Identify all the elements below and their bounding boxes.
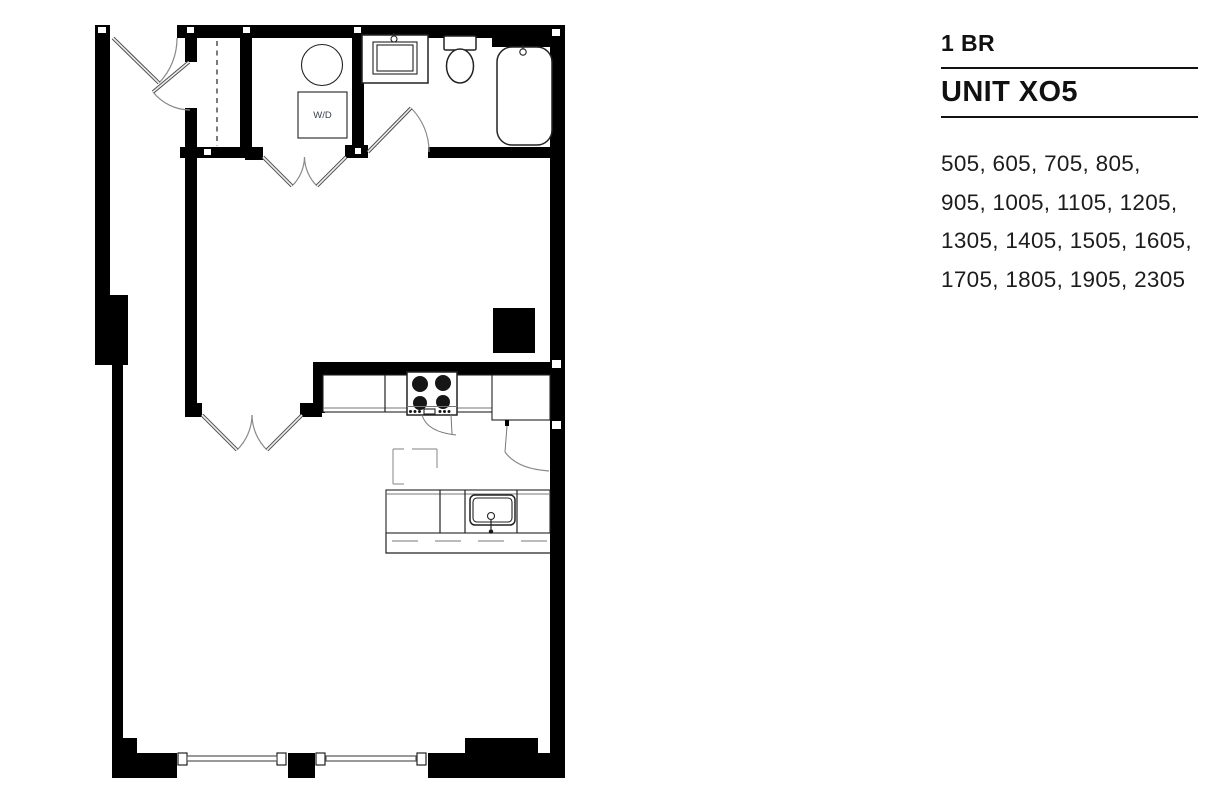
unit-numbers-list: 505, 605, 705, 805, 905, 1005, 1105, 120… [941,145,1198,299]
stove-burner [412,376,428,392]
wall-notch [354,27,361,33]
toilet-tank [444,36,476,50]
door-swing-arc [252,415,267,450]
door-leaf [505,426,507,452]
door-leaf-inner [113,38,159,83]
unit-numbers-line: 505, 605, 705, 805, [941,145,1198,184]
bar-overhang-edge [386,533,550,553]
window-glass [326,756,416,761]
door-leaf-inner [317,157,346,186]
vanity-sink [362,33,428,83]
table-corner-mark [393,449,404,484]
window-jamb [316,753,325,765]
laundry-closet: W/D [298,45,347,139]
faucet-icon [391,36,397,42]
bottom-wall-left [112,753,177,778]
bottom-wall-pier [288,753,315,778]
wall-notch [98,27,106,33]
door-swing-arc [305,157,318,186]
door-hinge-mark [505,420,509,426]
door-swing-arc [237,415,252,450]
entry-closet-door [153,62,190,110]
table-corner-mark [412,449,437,468]
bathroom-bottom-wall [428,147,550,158]
unit-info-panel: 1 BR UNIT XO5 505, 605, 705, 805, 905, 1… [941,30,1198,299]
laundry-double-doors [263,157,346,186]
divider-line [941,67,1198,69]
laundry-door-left-cap [245,147,263,160]
bathroom-door [368,108,429,152]
wall-notch [243,27,250,33]
window-jamb [417,753,426,765]
wall-notch [355,148,361,154]
stove-control-panel [424,409,435,414]
right-wall [550,25,565,778]
tub-outline [497,47,552,145]
bathroom [362,33,552,152]
entry-closet-wall-post [185,38,197,62]
water-heater [302,45,343,86]
french-doors [202,415,302,450]
oven-door-line [451,415,452,434]
stove-burner [435,375,451,391]
washer-dryer-label: W/D [313,110,332,121]
wall-notch [552,29,560,36]
wall-notch [187,27,194,33]
entry-door [113,38,177,83]
left-wall-pilaster [95,295,128,365]
door-leaf-inner [202,415,237,450]
door-swing-arc [505,452,549,471]
stove-knob [418,410,421,413]
sink-faucet [488,513,495,520]
french-door-left-post [185,403,202,417]
window-2 [315,753,428,778]
interior-walls [180,38,550,417]
unit-numbers-line: 905, 1005, 1105, 1205, [941,184,1198,223]
pantry-door [505,420,549,471]
stove-knob [414,410,417,413]
unit-name: UNIT XO5 [941,77,1198,108]
door-leaf-inner [263,157,292,186]
stove [407,372,457,435]
kitchen [323,372,550,553]
counter-right-section [492,375,550,420]
door-leaf-inner [267,415,302,450]
stove-knob [439,410,442,413]
unit-numbers-line: 1305, 1405, 1505, 1605, [941,222,1198,261]
island-outline [386,490,550,533]
dining-table-outline [393,449,437,484]
stove-burner [413,396,427,410]
island-counter [386,490,550,553]
divider-line [941,116,1198,118]
tub-faucet-icon [520,49,526,55]
wall-notch [552,421,561,429]
structural-column [493,308,535,353]
window-1 [177,753,288,778]
door-leaf-inner [368,108,411,152]
wall-notch [204,149,211,155]
sink-faucet-base [489,529,493,533]
toilet [444,36,476,83]
closet-divider-wall [240,38,252,158]
bathtub [497,45,552,145]
window-jamb [277,753,286,765]
toilet-bowl [447,49,474,83]
door-swing-arc [411,108,429,152]
door-swing-arc [292,157,305,186]
unit-numbers-line: 1705, 1805, 1905, 2305 [941,261,1198,300]
wall-notch [552,360,561,368]
floorplan-page: W/D [0,0,1228,794]
bedroom-count-label: 1 BR [941,30,1198,56]
french-door-right-post [300,403,322,417]
stove-knob [443,410,446,413]
left-wall-lower [112,365,123,778]
stove-knob [409,410,412,413]
window-jamb [178,753,187,765]
door-swing-arc [153,92,190,110]
sink-basin-inner [377,45,413,71]
window-glass [187,756,277,761]
bottom-wall-right-block [465,738,538,778]
stove-knob [448,410,451,413]
